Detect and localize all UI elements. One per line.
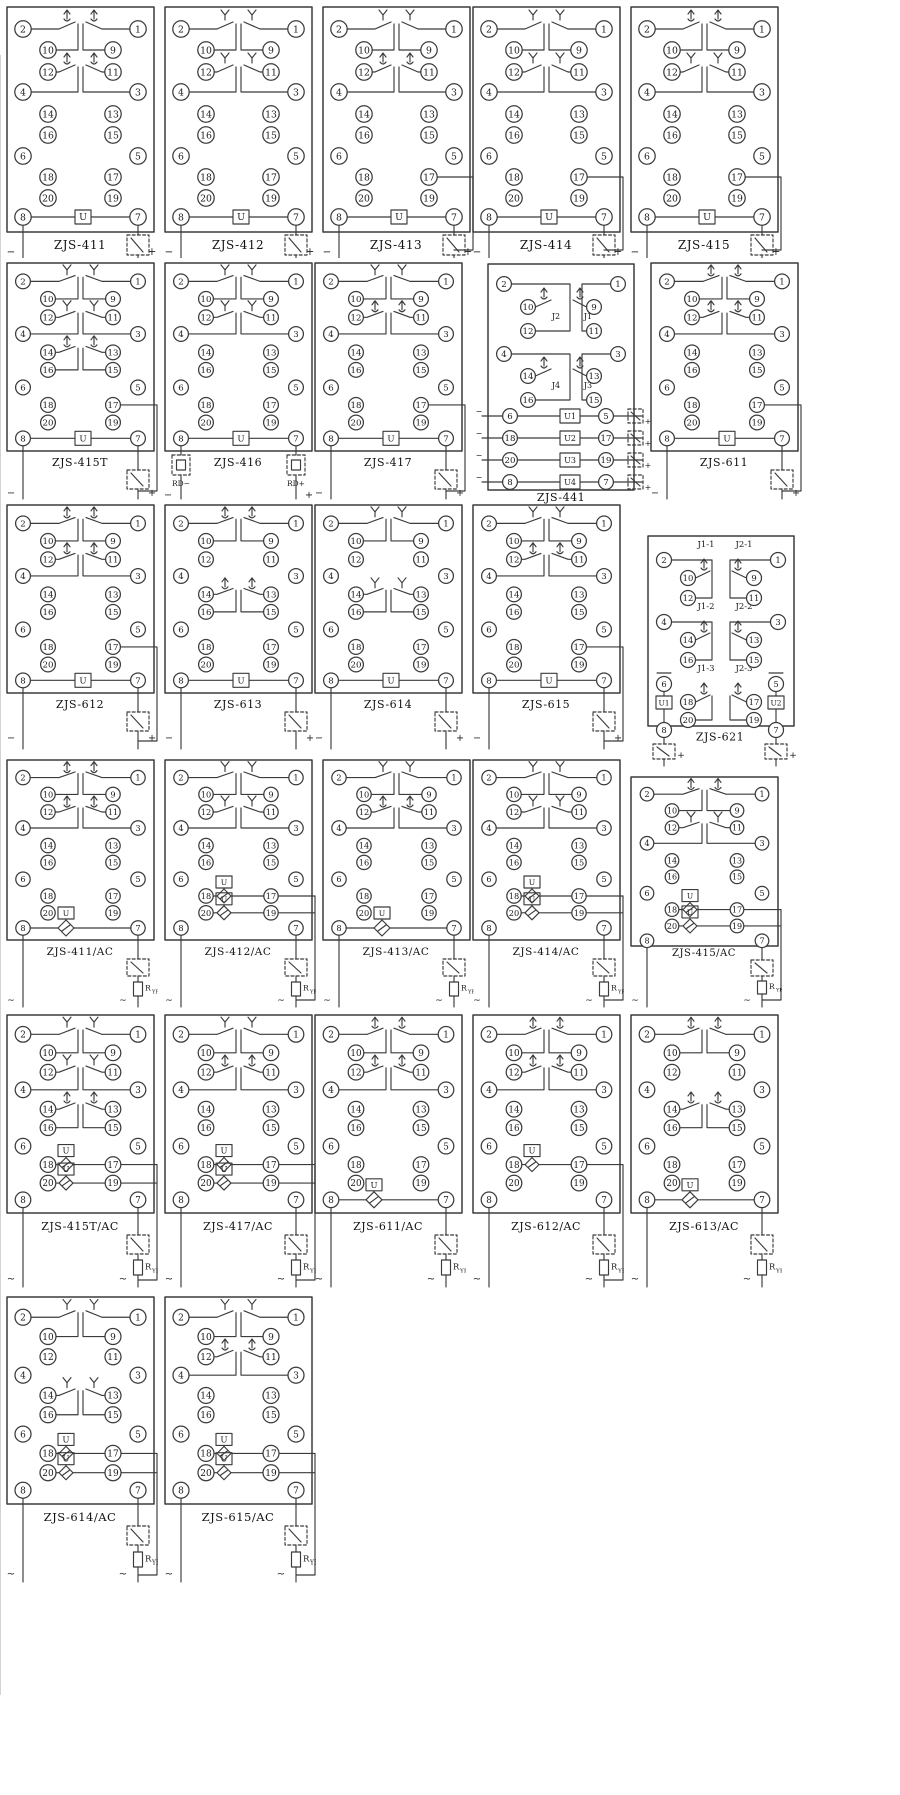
terminal-number: 2 bbox=[664, 277, 669, 287]
diagram-ZJS-612/AC: 2110912114314131615651817201987U~RYF~ZJS… bbox=[468, 1010, 624, 1288]
terminal-number: 12 bbox=[42, 67, 54, 78]
terminal-number: 6 bbox=[20, 384, 25, 394]
terminal-number: 9 bbox=[426, 45, 432, 56]
terminal-number: 13 bbox=[574, 590, 585, 600]
resistor-label-sub: YF bbox=[151, 1268, 158, 1274]
terminal-number: 10 bbox=[43, 789, 53, 799]
coil-label: U bbox=[237, 212, 245, 223]
terminal-number: 11 bbox=[416, 313, 427, 323]
terminal-number: 8 bbox=[661, 725, 666, 735]
terminal-number: 10 bbox=[666, 45, 678, 56]
contact-label: J1 bbox=[583, 312, 592, 321]
terminal-number: 12 bbox=[359, 807, 369, 817]
terminal-number: 19 bbox=[749, 715, 760, 725]
terminal-number: 8 bbox=[20, 434, 25, 444]
terminal-number: 16 bbox=[42, 1124, 54, 1134]
diagram-ZJS-441: 21012J21911J141416J431315J365U1−+1817U2−… bbox=[474, 258, 654, 504]
terminal-number: 1 bbox=[293, 1031, 299, 1041]
terminal-number: 12 bbox=[683, 593, 694, 603]
coil-label: U bbox=[703, 212, 711, 223]
terminal-number: 13 bbox=[108, 590, 119, 600]
coil-label: U4 bbox=[564, 478, 576, 487]
terminal-number: 13 bbox=[265, 1392, 277, 1402]
diagram-label: ZJS-413/AC bbox=[363, 946, 430, 958]
terminal-number: 12 bbox=[509, 555, 520, 565]
relay-case bbox=[315, 1015, 462, 1213]
diagram-ZJS-412: 2110912114314131615651817201987U−+ZJS-41… bbox=[160, 2, 316, 258]
terminal-number: 4 bbox=[20, 1371, 26, 1381]
test-switch bbox=[285, 959, 307, 976]
resistor-label-sub: YF bbox=[309, 1559, 316, 1566]
diagram-label: ZJS-415T/AC bbox=[41, 1220, 119, 1233]
terminal-number: 15 bbox=[574, 608, 585, 618]
terminal-number: 3 bbox=[135, 1371, 141, 1381]
terminal-number: 12 bbox=[509, 807, 519, 817]
schematic-ZJS-614: 2110912114314131615651817201987U−+ZJS-61… bbox=[310, 500, 466, 750]
terminal-number: 17 bbox=[265, 172, 277, 183]
terminal-number: 14 bbox=[350, 1105, 362, 1115]
resistor-label: R bbox=[769, 1261, 776, 1271]
relay-case bbox=[473, 1015, 620, 1213]
terminal-number: 10 bbox=[200, 1049, 212, 1059]
resistor-label: R bbox=[611, 1261, 618, 1271]
ac-mark: ~ bbox=[585, 1274, 593, 1285]
terminal-number: 1 bbox=[443, 1031, 449, 1041]
polarity-plus: + bbox=[148, 488, 156, 499]
terminal-number: 15 bbox=[266, 366, 277, 376]
terminal-number: 3 bbox=[293, 1086, 299, 1096]
polarity-minus: − bbox=[323, 246, 332, 258]
terminal-number: 16 bbox=[43, 857, 53, 867]
terminal-number: 4 bbox=[336, 823, 341, 833]
terminal-number: 4 bbox=[501, 350, 507, 360]
coil-label: U bbox=[545, 212, 553, 223]
terminal-number: 6 bbox=[486, 626, 491, 636]
terminal-number: 18 bbox=[687, 401, 698, 411]
terminal-number: 15 bbox=[731, 130, 743, 141]
terminal-number: 9 bbox=[576, 537, 581, 547]
resistor-label-sub: YF bbox=[617, 1268, 624, 1274]
terminal-number: 18 bbox=[666, 172, 678, 183]
terminal-number: 4 bbox=[486, 87, 492, 98]
coil-label: U bbox=[687, 908, 693, 917]
coil-label: U bbox=[687, 892, 693, 901]
terminal-number: 10 bbox=[42, 1333, 54, 1343]
terminal-number: 18 bbox=[667, 905, 677, 914]
terminal-number: 4 bbox=[328, 330, 334, 340]
diagram-ZJS-411: 2110912114314131615651817201987U−+ZJS-41… bbox=[2, 2, 158, 258]
polarity-minus: − bbox=[476, 407, 483, 416]
terminal-number: 6 bbox=[644, 1142, 650, 1152]
ac-mark: ~ bbox=[473, 995, 481, 1006]
terminal-number: 2 bbox=[336, 773, 341, 783]
terminal-number: 15 bbox=[108, 366, 119, 376]
polarity-minus: − bbox=[476, 473, 483, 482]
terminal-number: 11 bbox=[265, 67, 277, 78]
terminal-number: 8 bbox=[336, 923, 341, 933]
terminal-number: 5 bbox=[601, 1142, 607, 1152]
terminal-number: 9 bbox=[268, 537, 273, 547]
polarity-plus: + bbox=[148, 733, 156, 744]
terminal-number: 3 bbox=[759, 839, 764, 848]
terminal-number: 10 bbox=[42, 45, 54, 56]
terminal-number: 2 bbox=[644, 1031, 650, 1041]
diagram-ZJS-413: 2110912114314131615651817201987U−+ZJS-41… bbox=[318, 2, 474, 258]
ac-mark: ~ bbox=[323, 995, 331, 1006]
terminal-number: 17 bbox=[266, 891, 276, 901]
terminal-number: 15 bbox=[416, 366, 427, 376]
resistor-label-sub: YF bbox=[775, 988, 782, 994]
terminal-number: 20 bbox=[43, 419, 54, 429]
diagram-label: ZJS-415/AC bbox=[672, 948, 736, 959]
diagram-label: ZJS-413 bbox=[370, 238, 422, 252]
terminal-number: 17 bbox=[416, 643, 427, 653]
terminal-number: 10 bbox=[200, 45, 212, 56]
relay-case bbox=[631, 1015, 778, 1213]
test-switch bbox=[435, 470, 457, 489]
terminal-number: 14 bbox=[201, 348, 212, 358]
terminal-number: 8 bbox=[336, 212, 342, 223]
ac-mark: ~ bbox=[165, 1569, 173, 1580]
terminal-number: 4 bbox=[664, 330, 670, 340]
terminal-number: 1 bbox=[615, 280, 620, 290]
terminal-number: 17 bbox=[424, 891, 434, 901]
terminal-number: 14 bbox=[43, 348, 54, 358]
relay-case bbox=[165, 7, 312, 232]
schematic-ZJS-415: 2110912114314131615651817201987U−+ZJS-41… bbox=[626, 2, 782, 258]
test-switch bbox=[285, 1235, 307, 1254]
terminal-number: 12 bbox=[666, 1068, 677, 1078]
terminal-number: 20 bbox=[42, 193, 54, 204]
terminal-number: 19 bbox=[416, 419, 427, 429]
terminal-number: 11 bbox=[731, 1068, 742, 1078]
terminal-number: 9 bbox=[268, 1049, 274, 1059]
terminal-number: 6 bbox=[20, 1430, 26, 1440]
resistor-RYF bbox=[600, 982, 609, 996]
terminal-number: 15 bbox=[107, 1411, 119, 1421]
terminal-number: 16 bbox=[42, 1411, 54, 1421]
schematic-ZJS-621: J1-1J2-1J1-2J2-2J1-3J2-32101219114141631… bbox=[640, 500, 800, 768]
terminal-number: 1 bbox=[601, 773, 606, 783]
terminal-number: 19 bbox=[731, 193, 743, 204]
terminal-number: 16 bbox=[43, 366, 54, 376]
terminal-number: 11 bbox=[573, 67, 585, 78]
terminal-number: 7 bbox=[293, 923, 298, 933]
terminal-number: 2 bbox=[178, 773, 183, 783]
terminal-number: 14 bbox=[200, 1392, 212, 1402]
diagram-label: ZJS-416 bbox=[214, 456, 262, 469]
terminal-number: 10 bbox=[201, 537, 212, 547]
ac-mark: ~ bbox=[165, 1274, 173, 1285]
terminal-number: 7 bbox=[135, 923, 140, 933]
terminal-number: 11 bbox=[107, 1353, 118, 1363]
terminal-number: 18 bbox=[43, 891, 53, 901]
terminal-number: 14 bbox=[523, 372, 534, 382]
terminal-number: 9 bbox=[110, 45, 116, 56]
terminal-number: 5 bbox=[601, 626, 606, 636]
terminal-number: 5 bbox=[759, 151, 765, 162]
terminal-number: 2 bbox=[20, 24, 26, 35]
terminal-number: 3 bbox=[135, 330, 140, 340]
terminal-number: 20 bbox=[666, 1179, 678, 1189]
terminal-number: 17 bbox=[731, 1161, 742, 1171]
terminal-number: 10 bbox=[508, 45, 520, 56]
terminal-number: 19 bbox=[573, 1179, 584, 1189]
terminal-number: 5 bbox=[293, 151, 299, 162]
terminal-number: 11 bbox=[265, 1353, 276, 1363]
fuse bbox=[292, 460, 301, 470]
terminal-number: 8 bbox=[328, 676, 333, 686]
terminal-number: 20 bbox=[43, 908, 53, 918]
terminal-number: 9 bbox=[751, 573, 756, 583]
terminal-number: 16 bbox=[359, 857, 369, 867]
diagram-label: ZJS-621 bbox=[696, 731, 744, 744]
coil-label: U bbox=[221, 895, 228, 904]
terminal-number: 9 bbox=[418, 1049, 424, 1059]
terminal-number: 2 bbox=[486, 519, 491, 529]
terminal-number: 11 bbox=[573, 1068, 584, 1078]
terminal-number: 7 bbox=[601, 212, 607, 223]
terminal-number: 20 bbox=[200, 1179, 212, 1189]
fuse bbox=[177, 460, 186, 470]
terminal-number: 1 bbox=[293, 773, 298, 783]
terminal-number: 5 bbox=[773, 679, 778, 689]
terminal-number: 15 bbox=[574, 857, 584, 867]
terminal-number: 20 bbox=[43, 661, 54, 671]
terminal-number: 12 bbox=[666, 67, 678, 78]
terminal-number: 4 bbox=[328, 1086, 334, 1096]
terminal-number: 20 bbox=[509, 908, 519, 918]
terminal-number: 3 bbox=[451, 823, 456, 833]
terminal-number: 20 bbox=[200, 1469, 212, 1479]
test-switch bbox=[285, 235, 307, 255]
terminal-number: 18 bbox=[200, 1450, 212, 1460]
diagram-ZJS-612: 2110912114314131615651817201987U−+ZJS-61… bbox=[2, 500, 158, 750]
terminal-number: 16 bbox=[351, 608, 362, 618]
schematic-ZJS-417: 2110912114314131615651817201987U−+ZJS-41… bbox=[310, 258, 466, 500]
terminal-number: 1 bbox=[135, 1313, 141, 1323]
terminal-number: 15 bbox=[266, 608, 277, 618]
terminal-number: 13 bbox=[732, 856, 742, 865]
terminal-number: 10 bbox=[42, 1049, 54, 1059]
terminal-number: 17 bbox=[749, 697, 760, 707]
terminal-number: 4 bbox=[644, 87, 650, 98]
terminal-number: 17 bbox=[266, 401, 277, 411]
terminal-number: 8 bbox=[644, 212, 650, 223]
terminal-number: 17 bbox=[601, 434, 612, 444]
test-switch bbox=[285, 712, 307, 731]
terminal-number: 5 bbox=[293, 1430, 299, 1440]
schematic-ZJS-411/AC: 2110912114314131615651817201987U~RYF~ZJS… bbox=[2, 755, 158, 1008]
coil-label: U bbox=[63, 1164, 70, 1174]
polarity-minus: − bbox=[7, 246, 16, 258]
terminal-number: 10 bbox=[667, 806, 677, 815]
schematic-ZJS-612: 2110912114314131615651817201987U−+ZJS-61… bbox=[2, 500, 158, 750]
terminal-number: 8 bbox=[178, 434, 183, 444]
terminal-number: 16 bbox=[523, 396, 534, 406]
terminal-number: 14 bbox=[201, 590, 212, 600]
terminal-number: 15 bbox=[266, 857, 276, 867]
terminal-number: 2 bbox=[486, 1031, 492, 1041]
terminal-number: 11 bbox=[424, 807, 434, 817]
terminal-number: 19 bbox=[108, 419, 119, 429]
terminal-number: 1 bbox=[451, 24, 457, 35]
terminal-number: 10 bbox=[201, 789, 211, 799]
terminal-number: 18 bbox=[508, 172, 520, 183]
terminal-number: 12 bbox=[201, 313, 212, 323]
resistor-label-sub: YF bbox=[151, 989, 158, 995]
ac-mark: ~ bbox=[119, 995, 127, 1006]
terminal-number: 1 bbox=[775, 555, 780, 565]
terminal-number: 18 bbox=[201, 401, 212, 411]
terminal-number: 9 bbox=[734, 1049, 740, 1059]
ac-mark: ~ bbox=[277, 995, 285, 1006]
terminal-number: 3 bbox=[601, 1086, 607, 1096]
terminal-number: 12 bbox=[43, 807, 53, 817]
terminal-number: 2 bbox=[178, 1031, 184, 1041]
relay-case bbox=[315, 505, 462, 693]
terminal-number: 6 bbox=[178, 1430, 184, 1440]
terminal-number: 14 bbox=[42, 109, 54, 120]
terminal-number: 10 bbox=[687, 295, 698, 305]
resistor-label-sub: YF bbox=[151, 1559, 158, 1566]
terminal-number: 9 bbox=[734, 45, 740, 56]
terminal-number: 16 bbox=[200, 130, 212, 141]
polarity-plus: + bbox=[456, 733, 464, 744]
terminal-number: 16 bbox=[43, 608, 54, 618]
terminal-number: 14 bbox=[359, 841, 369, 851]
terminal-number: 6 bbox=[486, 874, 491, 884]
terminal-number: 9 bbox=[110, 1049, 116, 1059]
terminal-number: 7 bbox=[451, 212, 457, 223]
terminal-number: 19 bbox=[574, 661, 585, 671]
terminal-number: 12 bbox=[667, 824, 677, 833]
terminal-number: 7 bbox=[293, 212, 299, 223]
terminal-number: 11 bbox=[589, 327, 600, 337]
polarity-minus: − bbox=[165, 733, 173, 744]
terminal-number: 6 bbox=[644, 151, 650, 162]
contact-label: J1-3 bbox=[696, 664, 714, 674]
contact-label: J2-1 bbox=[734, 540, 752, 550]
polarity-plus: + bbox=[306, 246, 315, 258]
terminal-number: 13 bbox=[107, 109, 119, 120]
terminal-number: 3 bbox=[759, 1086, 765, 1096]
terminal-number: 20 bbox=[351, 661, 362, 671]
terminal-number: 4 bbox=[178, 330, 184, 340]
test-switch bbox=[751, 960, 773, 976]
diagram-label: ZJS-611 bbox=[700, 456, 748, 469]
terminal-number: 7 bbox=[603, 478, 608, 488]
terminal-number: 4 bbox=[20, 823, 25, 833]
terminal-number: 4 bbox=[178, 572, 184, 582]
terminal-number: 14 bbox=[687, 348, 698, 358]
schematic-ZJS-413: 2110912114314131615651817201987U−+ZJS-41… bbox=[318, 2, 474, 258]
relay-case bbox=[323, 7, 470, 232]
relay-case bbox=[651, 263, 798, 451]
polarity-plus: + bbox=[614, 246, 623, 258]
coil-label: U bbox=[79, 212, 87, 223]
terminal-number: 5 bbox=[135, 1430, 141, 1440]
terminal-number: 1 bbox=[779, 277, 784, 287]
coil-label: U bbox=[387, 434, 394, 444]
contact-label: J1-2 bbox=[696, 602, 714, 612]
test-switch bbox=[435, 712, 457, 731]
relay-case bbox=[323, 760, 470, 940]
coil-label: U2 bbox=[564, 434, 576, 443]
terminal-number: 14 bbox=[667, 856, 677, 865]
terminal-number: 20 bbox=[666, 193, 678, 204]
diagram-ZJS-611: 2110912114314131615651817201987U−+ZJS-61… bbox=[646, 258, 802, 500]
resistor-RYF bbox=[134, 1552, 143, 1567]
terminal-number: 8 bbox=[20, 676, 25, 686]
terminal-number: 12 bbox=[358, 67, 370, 78]
terminal-number: 3 bbox=[443, 1086, 449, 1096]
polarity-plus: + bbox=[148, 246, 157, 258]
terminal-number: 8 bbox=[178, 923, 183, 933]
terminal-number: 9 bbox=[268, 295, 273, 305]
coil-label: U bbox=[529, 1146, 536, 1156]
schematic-ZJS-614/AC: 2110912114314131615651817201987UU~RYF~ZJ… bbox=[2, 1292, 158, 1584]
terminal-number: 15 bbox=[573, 1124, 584, 1134]
terminal-number: 12 bbox=[351, 555, 362, 565]
polarity-minus: − bbox=[7, 733, 15, 744]
terminal-number: 2 bbox=[178, 24, 184, 35]
terminal-number: 3 bbox=[135, 87, 141, 98]
terminal-number: 5 bbox=[135, 626, 140, 636]
terminal-number: 6 bbox=[486, 1142, 492, 1152]
terminal-number: 14 bbox=[200, 109, 212, 120]
terminal-number: 16 bbox=[508, 130, 520, 141]
diagram-label: ZJS-612 bbox=[56, 698, 104, 711]
terminal-number: 13 bbox=[108, 348, 119, 358]
terminal-number: 3 bbox=[135, 1086, 141, 1096]
test-switch bbox=[593, 235, 615, 255]
terminal-number: 5 bbox=[135, 1142, 141, 1152]
terminal-number: 1 bbox=[135, 1031, 141, 1041]
diagram-ZJS-613/AC: 2110912114314131615651817201987U~RYF~ZJS… bbox=[626, 1010, 782, 1288]
terminal-number: 1 bbox=[443, 519, 448, 529]
schematic-ZJS-441: 21012J21911J141416J431315J365U1−+1817U2−… bbox=[474, 258, 654, 504]
test-switch bbox=[435, 1235, 457, 1254]
resistor-RYF bbox=[292, 982, 301, 996]
fuse-label: RD− bbox=[172, 479, 190, 488]
contact-label: J1-1 bbox=[696, 540, 714, 550]
polarity-minus: − bbox=[473, 246, 482, 258]
terminal-number: 3 bbox=[135, 572, 140, 582]
coil-label: U bbox=[387, 676, 394, 686]
terminal-number: 5 bbox=[779, 384, 784, 394]
resistor-RYF bbox=[758, 1260, 767, 1275]
terminal-number: 19 bbox=[424, 908, 434, 918]
terminal-number: 11 bbox=[108, 555, 119, 565]
coil-label: U bbox=[723, 434, 730, 444]
terminal-number: 13 bbox=[415, 1105, 426, 1115]
terminal-number: 10 bbox=[200, 1333, 212, 1343]
terminal-number: 13 bbox=[423, 109, 435, 120]
terminal-number: 1 bbox=[293, 519, 298, 529]
terminal-number: 10 bbox=[201, 295, 212, 305]
terminal-number: 15 bbox=[589, 396, 600, 406]
terminal-number: 5 bbox=[603, 412, 608, 422]
schematic-ZJS-416: 2110912114314131615651817201987URD−RD+−+… bbox=[160, 258, 316, 500]
resistor-label-sub: YF bbox=[617, 989, 624, 995]
polarity-minus: − bbox=[476, 451, 483, 460]
terminal-number: 9 bbox=[268, 45, 274, 56]
schematic-ZJS-417/AC: 2110912114314131615651817201987UU~RYF~ZJ… bbox=[160, 1010, 316, 1288]
schematic-ZJS-415/AC: 2110912114314131615651817201987UU~RYF~ZJ… bbox=[626, 772, 782, 1008]
terminal-number: 5 bbox=[293, 384, 298, 394]
terminal-number: 13 bbox=[573, 109, 585, 120]
